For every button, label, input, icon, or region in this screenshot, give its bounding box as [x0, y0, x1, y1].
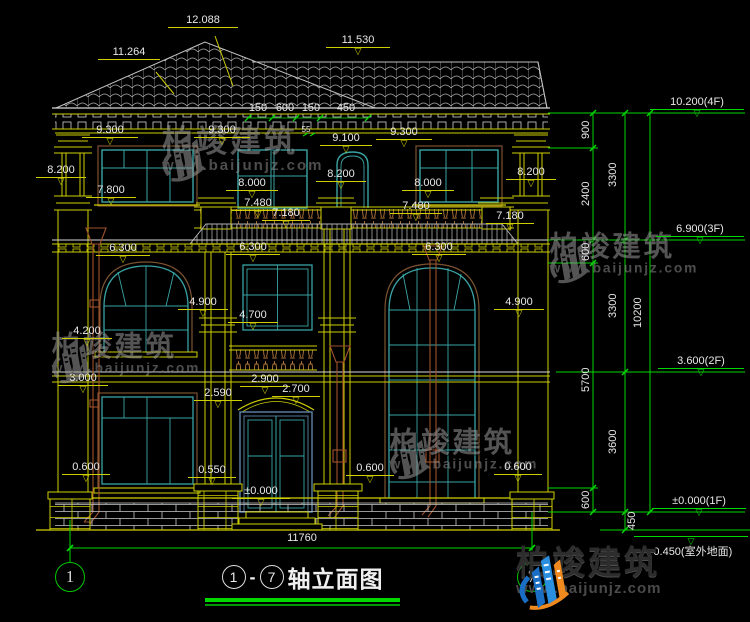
dim-label: 600: [580, 241, 592, 263]
dim-label: 900: [580, 119, 592, 141]
dim-label: 8.200▽: [316, 168, 366, 189]
dim-label: 4.900▽: [178, 296, 228, 317]
dim-label: 11760: [272, 532, 332, 544]
title-underline-thick: [205, 598, 400, 602]
dim-label: 150: [246, 102, 270, 114]
title-underline-thin: [205, 604, 400, 606]
dim-label: 11.264: [98, 46, 160, 60]
dim-label: 9.100▽: [320, 132, 372, 153]
dim-label: 0.600▽: [346, 462, 394, 483]
dim-label: 6.300▽: [226, 241, 280, 262]
dim-label: 3.600(2F)▽: [658, 355, 744, 376]
dimension-chains: [548, 110, 750, 533]
dim-label: 8.000▽: [226, 177, 278, 198]
dim-label: 5700: [580, 366, 592, 394]
dim-label: 3300: [607, 161, 619, 189]
dim-label: 3300: [607, 292, 619, 320]
title-axis-end: 7: [260, 565, 284, 589]
dim-label: 0.550▽: [188, 464, 236, 485]
dim-label: 0.600▽: [62, 461, 110, 482]
dim-label: 9.300▽: [376, 126, 432, 147]
title-separator: -: [250, 567, 256, 588]
dim-label: 11.530▽: [326, 34, 390, 55]
dim-label: 8.200▽: [506, 166, 556, 187]
dim-label: 55: [299, 126, 313, 134]
dim-label: 600: [580, 489, 592, 511]
dim-label: 150: [299, 102, 323, 114]
dim-label: 4.200▽: [62, 325, 112, 346]
dim-label: 6.900(3F)▽: [656, 223, 744, 244]
dim-label: 3600: [607, 428, 619, 456]
brand-logo-icon: [514, 546, 582, 616]
dim-label: 0.600▽: [494, 461, 542, 482]
dim-label: 7.800▽: [86, 184, 136, 205]
dim-label: ±0.000(1F)▽: [652, 495, 746, 516]
dim-label: 2.700▽: [272, 383, 320, 404]
dim-label: 10200: [632, 295, 644, 330]
axis-bubble-1: 1: [55, 562, 85, 592]
base-plinth: [36, 484, 560, 530]
dim-label: 10.200(4F)▽: [650, 96, 744, 117]
dim-label: 8.000▽: [402, 177, 454, 198]
brand-logo-block: 柏竣建筑 www.baijunjz.com: [514, 546, 661, 597]
dim-label: 7.180▽: [262, 207, 310, 228]
dim-label: 450: [626, 510, 638, 532]
title-axis-start: 1: [222, 565, 246, 589]
dim-label: 3.000▽: [58, 372, 108, 393]
dim-label: 7.480▽: [390, 200, 442, 221]
dim-label: 600: [272, 102, 298, 114]
elevation-drawing-canvas: 1-7轴立面图 1 7 柏竣建筑 www.baijunjz.com const …: [0, 0, 750, 622]
dim-label: 2400: [580, 180, 592, 208]
axis-bubble-1-label: 1: [66, 567, 75, 587]
dim-label: 6.300▽: [96, 242, 150, 263]
dim-label: 7.180▽: [486, 210, 534, 231]
dim-label: 9.300▽: [82, 124, 138, 145]
dim-label: 9.300▽: [194, 124, 250, 145]
dim-label: 8.200▽: [36, 164, 86, 185]
dim-label: 4.900▽: [494, 296, 544, 317]
dim-label: 450: [332, 102, 360, 114]
dim-label: 6.300▽: [412, 241, 466, 262]
title-text: 轴立面图: [288, 560, 384, 594]
drawing-title: 1-7轴立面图: [205, 560, 400, 606]
dim-label: ±0.000▽: [232, 485, 290, 506]
dim-label: 4.700▽: [228, 309, 278, 330]
dim-label: 12.088: [168, 14, 238, 28]
dim-label: 2.590▽: [194, 387, 242, 408]
